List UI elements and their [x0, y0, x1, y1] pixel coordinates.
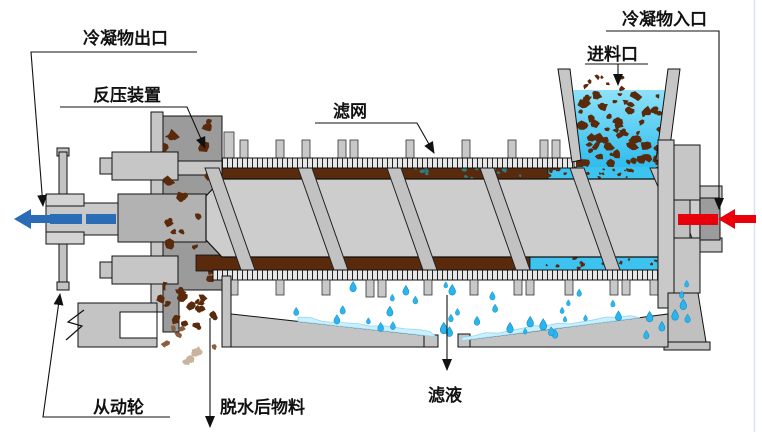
- left-bearing-block: [118, 194, 206, 242]
- wheel-hub-top: [46, 194, 84, 206]
- screw-body: [206, 179, 700, 257]
- screw-shaft: [205, 168, 700, 270]
- filter-screen-bottom: [213, 270, 663, 280]
- label-back-pressure-device: 反压装置: [93, 85, 161, 106]
- right-upper-block: [674, 145, 700, 200]
- top-cylinder: [112, 152, 178, 180]
- bottom-cylinder: [112, 256, 178, 284]
- screw-press-diagram: 冷凝物出口 反压装置 滤网 进料口 冷凝物入口 从动轮 脱水后物料 滤液: [0, 0, 762, 432]
- diagram-canvas: 冷凝物出口 反压装置 滤网 进料口 冷凝物入口 从动轮 脱水后物料 滤液: [0, 0, 762, 432]
- top-cylinder-head: [100, 158, 112, 174]
- condensate-inlet-channel: [678, 214, 718, 225]
- label-feed-inlet: 进料口: [587, 44, 638, 65]
- label-condensate-outlet: 冷凝物出口: [83, 28, 168, 49]
- label-dewatered-material: 脱水后物料: [220, 397, 305, 418]
- right-support-foot: [664, 342, 710, 350]
- label-driven-wheel: 从动轮: [93, 397, 144, 418]
- bottom-cylinder-head: [100, 262, 112, 278]
- wheel-hub-bottom: [46, 232, 84, 244]
- label-filtrate: 滤液: [428, 385, 462, 406]
- label-filter-screen: 滤网: [333, 101, 367, 122]
- filter-screen-top: [222, 158, 574, 168]
- label-condensate-inlet: 冷凝物入口: [622, 9, 707, 30]
- right-end-plate: [658, 140, 674, 308]
- left-tray-wall: [222, 276, 231, 347]
- foot-bracket-notch: [120, 312, 157, 338]
